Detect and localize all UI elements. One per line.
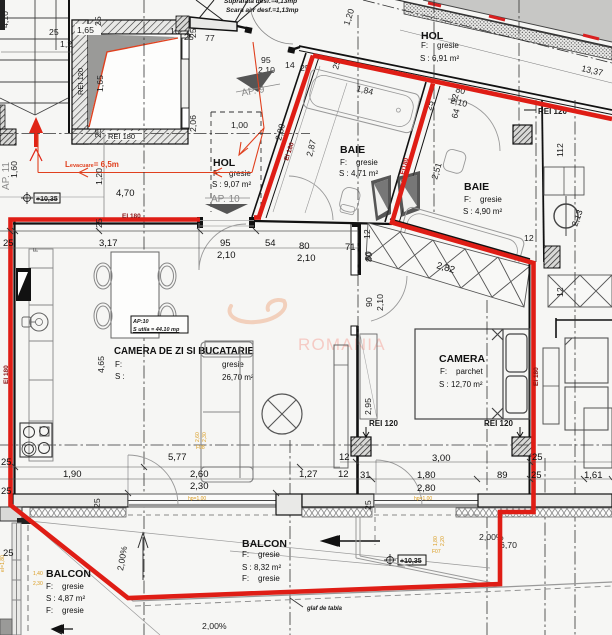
svg-text:AP. 11: AP. 11: [1, 162, 12, 190]
svg-text:14: 14: [285, 60, 295, 70]
svg-text:S utila = 44.10 mp: S utila = 44.10 mp: [133, 327, 180, 333]
svg-text:2,30: 2,30: [202, 432, 208, 442]
svg-text:S :: S :: [115, 372, 125, 381]
svg-text:S : 9,07 m²: S : 9,07 m²: [212, 180, 251, 189]
svg-text:AP. 10: AP. 10: [211, 194, 240, 205]
svg-text:2,60: 2,60: [190, 469, 209, 480]
svg-text:25: 25: [1, 457, 12, 468]
svg-text:F: gresie: F: gresie: [421, 41, 459, 50]
svg-text:1,00: 1,00: [231, 120, 248, 130]
svg-text:4,70: 4,70: [116, 188, 135, 199]
svg-text:26,70 m²: 26,70 m²: [222, 373, 254, 382]
svg-text:Scara aer desf.=1,13mp: Scara aer desf.=1,13mp: [226, 7, 298, 14]
svg-text:25: 25: [532, 452, 543, 463]
svg-text:2,30: 2,30: [190, 481, 209, 492]
svg-text:25: 25: [93, 128, 103, 138]
svg-text:F: gresie: F: gresie: [46, 582, 84, 591]
svg-text:1,65: 1,65: [95, 75, 105, 92]
svg-text:F07: F07: [432, 549, 441, 555]
svg-text:F: gresie: F: gresie: [464, 195, 502, 204]
svg-text:31: 31: [360, 470, 371, 481]
svg-text:EI 180: EI 180: [533, 367, 540, 386]
svg-text:3,17: 3,17: [99, 238, 118, 249]
svg-text:12: 12: [362, 229, 372, 239]
svg-text:112: 112: [555, 143, 565, 157]
svg-text:5,77: 5,77: [168, 452, 187, 463]
svg-text:Suprafata desf.=4,13mp: Suprafata desf.=4,13mp: [224, 0, 297, 5]
svg-text:S : 4,87 m²: S : 4,87 m²: [46, 594, 85, 603]
svg-text:REI 120: REI 120: [369, 419, 398, 428]
svg-text:80: 80: [299, 241, 310, 252]
svg-text:90: 90: [364, 297, 374, 307]
svg-text:S : 4,90 m²: S : 4,90 m²: [463, 207, 502, 216]
svg-text:77: 77: [205, 33, 215, 43]
svg-text:F:: F:: [115, 360, 122, 369]
svg-text:1,80: 1,80: [417, 470, 436, 481]
svg-text:4,10: 4,10: [0, 11, 10, 28]
svg-text:CAMERA: CAMERA: [439, 353, 485, 365]
svg-text:1,65: 1,65: [77, 25, 94, 35]
svg-text:3,00: 3,00: [432, 453, 451, 464]
svg-text:95: 95: [220, 238, 231, 249]
svg-text:BAIE: BAIE: [340, 144, 365, 156]
svg-text:gresie: gresie: [222, 360, 244, 369]
svg-text:1,20: 1,20: [94, 168, 104, 185]
svg-text:25: 25: [93, 16, 103, 26]
svg-text:25: 25: [92, 498, 102, 508]
svg-text:REI 120: REI 120: [484, 419, 513, 428]
svg-text:CAMERA DE ZI SI BUCATARIE: CAMERA DE ZI SI BUCATARIE: [114, 345, 254, 357]
svg-text:2,20: 2,20: [440, 536, 446, 546]
svg-text:25: 25: [49, 27, 59, 37]
svg-text:F: parchet: F: parchet: [440, 367, 483, 376]
svg-text:25: 25: [1, 486, 12, 497]
svg-text:F08: F08: [196, 445, 205, 451]
svg-text:BAIE: BAIE: [464, 181, 489, 193]
svg-text:S : 8,32 m²: S : 8,32 m²: [242, 563, 281, 572]
svg-text:1,40: 1,40: [33, 571, 43, 577]
svg-text:2,60: 2,60: [195, 432, 201, 442]
svg-text:F: gresie: F: gresie: [242, 550, 280, 559]
svg-text:glaf de tabla: glaf de tabla: [306, 606, 343, 612]
svg-text:1,80: 1,80: [433, 536, 439, 546]
svg-text:REI 120: REI 120: [76, 68, 85, 95]
svg-text:71: 71: [345, 242, 356, 253]
svg-text:25: 25: [184, 32, 194, 42]
svg-text:EI 180: EI 180: [122, 213, 141, 220]
svg-text:F: gresie: F: gresie: [242, 574, 280, 583]
svg-text:HOL: HOL: [213, 157, 236, 169]
svg-text:2,95: 2,95: [363, 398, 373, 415]
svg-text:2,30: 2,30: [33, 581, 43, 587]
svg-text:BALCON: BALCON: [242, 538, 287, 550]
svg-text:2,10: 2,10: [217, 250, 236, 261]
svg-text:F: gresie: F: gresie: [46, 606, 84, 615]
svg-text:BALCON: BALCON: [46, 568, 91, 580]
svg-text:1,61: 1,61: [584, 470, 603, 481]
svg-text:S : 4,71 m²: S : 4,71 m²: [339, 169, 378, 178]
svg-text:hp=1,00: hp=1,00: [414, 496, 432, 502]
svg-text:2,80: 2,80: [417, 483, 436, 494]
svg-text:1,90: 1,90: [63, 469, 82, 480]
svg-text:12: 12: [339, 452, 350, 463]
svg-text:89: 89: [497, 470, 508, 481]
svg-text:25: 25: [531, 470, 542, 481]
svg-text:F: F: [33, 248, 40, 252]
svg-text:S : 6,91 m²: S : 6,91 m²: [420, 54, 459, 63]
svg-text:F: gresie: F: gresie: [340, 158, 378, 167]
svg-text:AP:10: AP:10: [132, 319, 149, 325]
svg-text:2,10: 2,10: [375, 294, 385, 311]
svg-text:54: 54: [265, 238, 276, 249]
svg-text:12: 12: [338, 469, 349, 480]
svg-text:95: 95: [261, 55, 271, 65]
svg-text:12: 12: [524, 233, 534, 243]
svg-text:6,70: 6,70: [500, 540, 517, 550]
svg-text:EI 180: EI 180: [3, 365, 10, 384]
svg-text:4,65: 4,65: [96, 356, 106, 373]
svg-text:12: 12: [555, 287, 565, 297]
svg-text:2,06: 2,06: [188, 115, 198, 132]
svg-text:S : 12,70 m²: S : 12,70 m²: [439, 380, 483, 389]
svg-text:25: 25: [363, 500, 373, 510]
svg-text:2,00%: 2,00%: [202, 621, 227, 631]
svg-text:F: gresie: F: gresie: [213, 169, 251, 178]
svg-text:eI=1,80: eI=1,80: [0, 555, 6, 572]
svg-text:25: 25: [3, 238, 14, 249]
svg-text:80: 80: [363, 251, 373, 261]
svg-text:25: 25: [94, 218, 104, 228]
svg-text:+10,35: +10,35: [400, 558, 422, 565]
svg-text:2,10: 2,10: [297, 253, 316, 264]
svg-text:1,27: 1,27: [299, 469, 318, 480]
svg-text:hp=1,00: hp=1,00: [188, 496, 206, 502]
